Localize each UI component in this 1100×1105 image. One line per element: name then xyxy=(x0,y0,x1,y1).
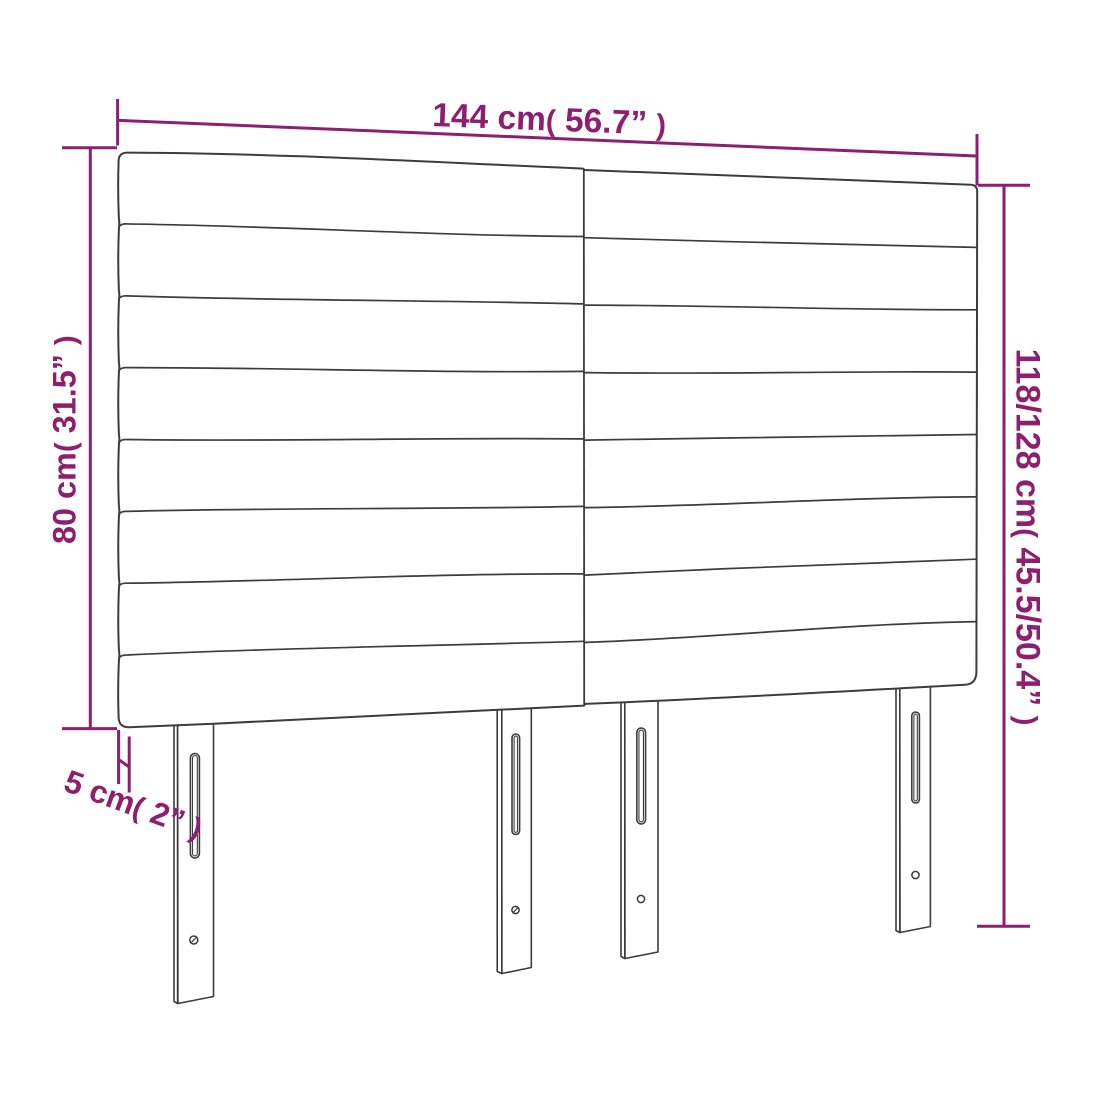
svg-text:118/128 cm( 45.5/50.4” ): 118/128 cm( 45.5/50.4” ) xyxy=(1009,349,1047,726)
svg-text:80 cm( 31.5” ): 80 cm( 31.5” ) xyxy=(47,335,83,544)
